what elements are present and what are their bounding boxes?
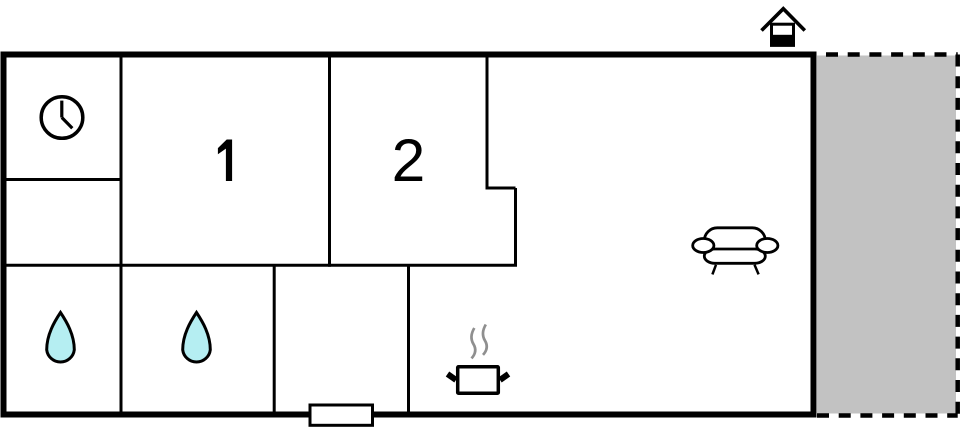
svg-text:2: 2 [392, 126, 426, 194]
